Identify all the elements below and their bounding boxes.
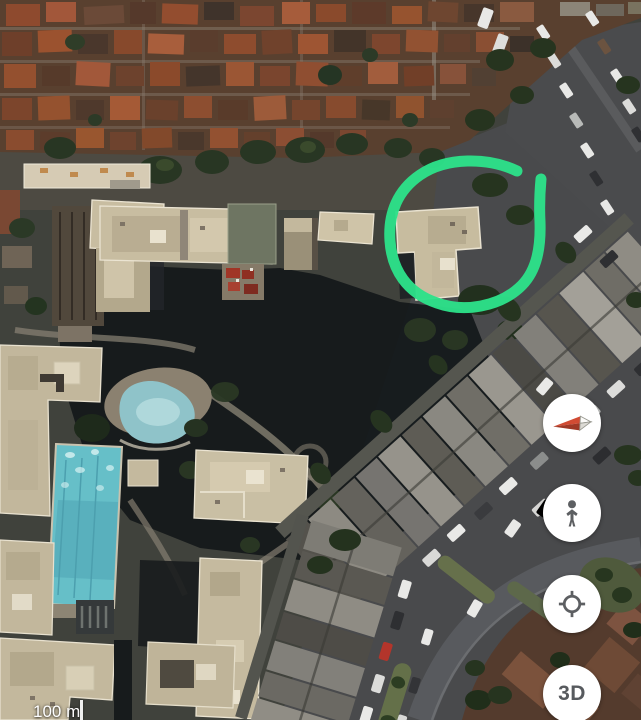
scale-bar: 100 m [33,702,80,720]
apartment-west-column-b [0,540,54,635]
compass-needle-icon [550,401,594,445]
red-roof-cluster [222,264,264,300]
satellite-map-view[interactable]: 3D 100 m [0,0,641,720]
apartment-tower-mid [284,218,318,270]
3d-button-label: 3D [558,682,586,706]
scale-bar-label: 100 m [33,702,80,720]
my-location-icon [557,589,587,619]
3d-toggle-button[interactable]: 3D [543,665,601,720]
pegman-icon [557,498,587,528]
green-roof-block [228,204,276,264]
apartment-slab-mid [318,212,374,244]
compass-button[interactable] [543,394,601,452]
my-location-button[interactable] [543,575,601,633]
street-view-button[interactable] [543,484,601,542]
scale-bar-tick [80,700,83,720]
apartment-center [194,450,308,524]
